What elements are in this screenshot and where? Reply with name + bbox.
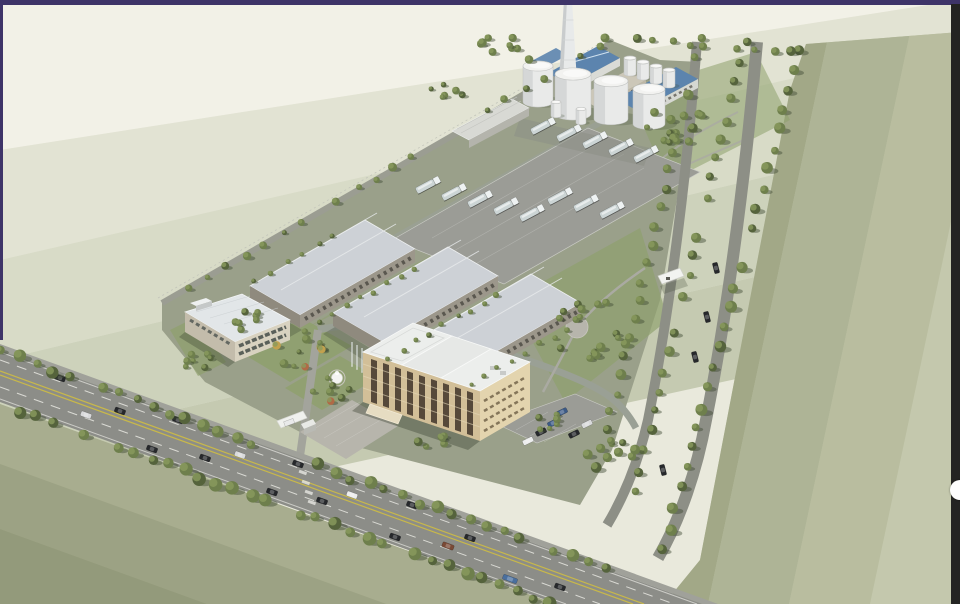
tree-highlight xyxy=(553,336,556,339)
tree-highlight xyxy=(197,420,205,428)
tree-highlight xyxy=(577,314,581,318)
tree-highlight xyxy=(509,34,514,39)
tree-highlight xyxy=(514,533,521,540)
tree-highlight xyxy=(594,301,599,306)
tree-highlight xyxy=(457,314,460,317)
tree-highlight xyxy=(748,225,753,230)
tree-highlight xyxy=(607,437,612,442)
tree-highlight xyxy=(578,306,583,311)
tree-highlight xyxy=(525,56,530,61)
tree-highlight xyxy=(670,329,676,335)
tree-highlight xyxy=(777,106,783,112)
tree-highlight xyxy=(415,500,421,506)
tree-highlight xyxy=(596,444,602,450)
tree-highlight xyxy=(310,389,314,393)
tree-highlight xyxy=(523,352,526,355)
tree-highlight xyxy=(329,517,337,525)
tree-highlight xyxy=(485,35,490,40)
tree-highlight xyxy=(298,219,302,223)
tree-highlight xyxy=(601,34,607,40)
tree-highlight xyxy=(297,350,300,353)
tree-highlight xyxy=(658,369,664,375)
tree-highlight xyxy=(560,308,565,313)
tree-highlight xyxy=(650,108,655,113)
tree-highlight xyxy=(737,262,744,269)
tree-highlight xyxy=(470,383,473,386)
tree-highlight xyxy=(243,252,248,257)
tree-highlight xyxy=(338,394,343,399)
tree-highlight xyxy=(346,528,352,534)
tree-highlight xyxy=(716,135,722,141)
tree-highlight xyxy=(14,350,22,358)
tree-highlight xyxy=(318,346,323,351)
tree-highlight xyxy=(179,412,187,420)
tree-highlight xyxy=(493,292,497,296)
tree-highlight xyxy=(728,284,734,290)
tree-highlight xyxy=(494,365,497,368)
tree-highlight xyxy=(615,335,619,339)
tree-highlight xyxy=(280,360,285,365)
tree-highlight xyxy=(489,48,494,53)
tree-highlight xyxy=(636,296,642,302)
tree-highlight xyxy=(432,501,440,509)
tree-highlight xyxy=(636,280,641,285)
tree-highlight xyxy=(286,259,289,262)
tree-highlight xyxy=(691,54,696,59)
tree-highlight xyxy=(478,39,483,44)
tree-highlight xyxy=(247,441,252,446)
tree-highlight xyxy=(584,557,590,563)
tree-highlight xyxy=(79,430,86,437)
tree-highlight xyxy=(412,267,415,270)
tree-highlight xyxy=(282,230,285,233)
tree-highlight xyxy=(603,453,609,459)
tree-highlight xyxy=(209,479,217,487)
tree-highlight xyxy=(616,370,623,377)
tree-highlight xyxy=(398,490,404,496)
tree-highlight xyxy=(128,448,135,455)
tree-highlight xyxy=(602,564,608,570)
tree-highlight xyxy=(345,476,351,482)
tree-highlight xyxy=(564,327,568,331)
tree-highlight xyxy=(760,186,765,191)
tree-highlight xyxy=(720,323,725,328)
tree-highlight xyxy=(481,374,484,377)
tree-highlight xyxy=(180,463,188,471)
tree-highlight xyxy=(253,317,257,321)
tree-highlight xyxy=(208,355,212,359)
tree-highlight xyxy=(513,586,519,592)
tree-highlight xyxy=(789,65,795,71)
tree-highlight xyxy=(317,320,320,323)
tree-highlight xyxy=(468,309,471,312)
tree-highlight xyxy=(657,545,663,551)
tree-highlight xyxy=(771,48,776,53)
tree-highlight xyxy=(625,334,631,340)
tree-highlight xyxy=(452,87,457,92)
tree-highlight xyxy=(114,443,120,449)
tree-highlight xyxy=(557,345,562,350)
tree-highlight xyxy=(247,490,255,498)
tree-highlight xyxy=(331,468,338,475)
tree-highlight xyxy=(204,351,209,356)
tree-highlight xyxy=(428,557,434,563)
rooftop-ac-unit xyxy=(500,371,506,375)
tree-highlight xyxy=(441,82,444,85)
tree-highlight xyxy=(736,59,741,64)
tree-highlight xyxy=(149,456,155,462)
tree-highlight xyxy=(374,177,378,181)
tree-highlight xyxy=(602,299,607,304)
tree-highlight xyxy=(613,330,618,335)
tree-highlight xyxy=(667,115,673,121)
tree-highlight xyxy=(327,398,332,403)
tree-highlight xyxy=(656,389,661,394)
tree-highlight xyxy=(409,548,417,556)
tree-highlight xyxy=(540,75,545,80)
architectural-rendering xyxy=(0,0,960,604)
tree-highlight xyxy=(500,96,505,101)
tree-highlight xyxy=(330,234,333,237)
tree-highlight xyxy=(666,140,670,144)
tree-highlight xyxy=(666,130,671,135)
tree-highlight xyxy=(556,315,560,319)
tree-highlight xyxy=(664,347,671,354)
tree-highlight xyxy=(332,198,337,203)
tree-highlight xyxy=(439,435,444,440)
tree-highlight xyxy=(329,382,334,387)
tree-highlight xyxy=(183,358,188,363)
tree-highlight xyxy=(715,341,722,348)
tree-highlight xyxy=(529,595,535,601)
tree-highlight xyxy=(668,149,674,155)
tree-highlight xyxy=(296,511,302,517)
tree-highlight xyxy=(330,312,333,315)
tree-highlight xyxy=(408,154,412,158)
tree-highlight xyxy=(696,404,703,411)
tree-highlight xyxy=(185,285,189,289)
tree-highlight xyxy=(237,326,242,331)
tree-highlight xyxy=(667,503,674,510)
tree-highlight xyxy=(48,418,54,424)
tree-highlight xyxy=(205,275,208,278)
tree-highlight xyxy=(631,315,637,321)
tree-highlight xyxy=(466,515,472,521)
tree-highlight xyxy=(649,223,655,229)
tree-highlight xyxy=(630,445,636,451)
tree-highlight xyxy=(317,340,320,343)
tree-highlight xyxy=(537,427,541,431)
tree-highlight xyxy=(730,77,735,82)
tree-highlight xyxy=(191,358,194,361)
tree-highlight xyxy=(165,410,171,416)
slide-border-left xyxy=(0,0,3,340)
tree-highlight xyxy=(300,252,303,255)
tree-highlight xyxy=(363,532,371,540)
tree-highlight xyxy=(771,147,776,152)
tree-highlight xyxy=(254,309,258,313)
tree-highlight xyxy=(567,549,575,557)
scene-canvas xyxy=(0,0,960,604)
tree-highlight xyxy=(312,458,320,466)
tree-highlight xyxy=(371,291,374,294)
tree-highlight xyxy=(619,352,625,358)
tree-highlight xyxy=(698,112,703,117)
tree-highlight xyxy=(482,522,489,529)
tree-highlight xyxy=(501,527,506,532)
tree-highlight xyxy=(302,329,306,333)
tree-highlight xyxy=(644,125,648,129)
tree-highlight xyxy=(661,137,666,142)
tree-highlight xyxy=(597,43,602,48)
tree-highlight xyxy=(688,442,694,448)
tree-highlight xyxy=(632,488,637,493)
tree-highlight xyxy=(706,173,711,178)
tree-highlight xyxy=(402,348,406,352)
tree-highlight xyxy=(614,392,618,396)
tree-highlight xyxy=(649,37,653,41)
tree-highlight xyxy=(446,509,452,515)
tree-highlight xyxy=(691,233,697,239)
tree-highlight xyxy=(462,567,470,575)
tree-highlight xyxy=(388,163,394,169)
tree-highlight xyxy=(30,410,37,417)
tree-highlight xyxy=(188,351,193,356)
tree-highlight xyxy=(444,560,451,567)
tree-highlight xyxy=(666,525,673,532)
tree-highlight xyxy=(547,426,550,429)
tree-highlight xyxy=(574,301,579,306)
tree-highlight xyxy=(98,383,104,389)
tree-highlight xyxy=(596,343,602,349)
tree-highlight xyxy=(761,162,768,169)
tree-highlight xyxy=(273,341,278,346)
tree-highlight xyxy=(678,292,684,298)
tree-highlight xyxy=(711,154,716,159)
tree-highlight xyxy=(485,108,489,112)
tree-highlight xyxy=(647,425,653,431)
tree-highlight xyxy=(193,473,201,481)
tree-highlight xyxy=(268,271,271,274)
tree-highlight xyxy=(549,548,554,553)
tree-highlight xyxy=(385,357,388,360)
tree-highlight xyxy=(495,580,501,586)
slide-border-top xyxy=(0,0,960,5)
tree-highlight xyxy=(688,124,694,130)
tree-highlight xyxy=(657,203,662,208)
tree-highlight xyxy=(259,242,264,247)
tree-highlight xyxy=(683,90,689,96)
tree-highlight xyxy=(377,539,383,545)
tree-highlight xyxy=(783,86,789,92)
tree-highlight xyxy=(346,386,350,390)
tree-highlight xyxy=(241,308,246,313)
tree-highlight xyxy=(614,448,620,454)
tree-highlight xyxy=(722,118,728,124)
tree-highlight xyxy=(414,338,417,341)
tree-highlight xyxy=(163,458,169,464)
tree-highlight xyxy=(379,485,384,490)
tree-highlight xyxy=(232,433,239,440)
tree-highlight xyxy=(356,184,360,188)
tree-highlight xyxy=(663,165,668,170)
tree-highlight xyxy=(751,47,755,51)
tree-highlight xyxy=(688,251,694,257)
tree-highlight xyxy=(774,123,781,130)
tree-highlight xyxy=(577,53,581,57)
tree-highlight xyxy=(699,43,704,48)
tree-highlight xyxy=(523,85,527,89)
tree-highlight xyxy=(46,367,54,375)
tree-highlight xyxy=(725,301,732,308)
tree-highlight xyxy=(553,416,558,421)
tree-highlight xyxy=(648,241,654,247)
tree-highlight xyxy=(311,512,317,518)
tree-highlight xyxy=(651,407,656,412)
tree-highlight xyxy=(302,363,307,368)
tree-highlight xyxy=(786,47,792,53)
tree-highlight xyxy=(201,364,206,369)
tree-highlight xyxy=(619,439,623,443)
tree-highlight xyxy=(743,38,748,43)
tree-highlight xyxy=(291,364,294,367)
viewer-edge-strip xyxy=(951,4,960,604)
tree-highlight xyxy=(317,241,320,244)
tree-highlight xyxy=(554,412,558,416)
tree-highlight xyxy=(750,204,756,210)
tree-highlight xyxy=(225,482,233,490)
tree-highlight xyxy=(709,364,714,369)
tree-highlight xyxy=(134,395,139,400)
tree-highlight xyxy=(662,185,668,191)
tree-highlight xyxy=(251,279,254,282)
tree-highlight xyxy=(591,463,598,470)
tree-highlight xyxy=(115,388,120,393)
tree-highlight xyxy=(482,301,485,304)
tree-highlight xyxy=(510,359,513,362)
tree-highlight xyxy=(703,383,709,389)
tree-highlight xyxy=(677,482,683,488)
tree-highlight xyxy=(212,426,219,433)
tree-highlight xyxy=(399,274,402,277)
tree-highlight xyxy=(687,42,691,46)
tree-highlight xyxy=(325,376,328,379)
tree-highlight xyxy=(726,94,732,100)
tree-highlight xyxy=(634,468,640,474)
tree-highlight xyxy=(680,112,685,117)
fountain-spray xyxy=(335,371,339,375)
tree-highlight xyxy=(236,320,241,325)
tree-highlight xyxy=(414,438,419,443)
tree-highlight xyxy=(586,355,590,359)
tree-highlight xyxy=(440,95,443,98)
tree-highlight xyxy=(14,407,22,415)
tree-highlight xyxy=(692,424,697,429)
tree-highlight xyxy=(426,332,430,336)
tree-highlight xyxy=(34,360,39,365)
tree-highlight xyxy=(358,295,361,298)
tree-highlight xyxy=(603,425,609,431)
tree-highlight xyxy=(684,463,689,468)
tree-highlight xyxy=(345,303,349,307)
tree-highlight xyxy=(673,137,678,142)
tree-highlight xyxy=(733,45,738,50)
tree-highlight xyxy=(476,572,483,579)
tree-highlight xyxy=(149,402,155,408)
tree-highlight xyxy=(685,138,690,143)
tree-highlight xyxy=(698,34,703,39)
tree-highlight xyxy=(670,38,675,43)
tree-highlight xyxy=(642,259,647,264)
tree-highlight xyxy=(365,477,373,485)
tree-highlight xyxy=(326,388,331,393)
tree-highlight xyxy=(687,272,691,276)
tree-highlight xyxy=(704,195,709,200)
tree-highlight xyxy=(302,335,307,340)
tree-highlight xyxy=(583,450,589,456)
gatehouse-booth xyxy=(666,277,670,280)
tree-highlight xyxy=(535,414,540,419)
tree-highlight xyxy=(573,316,577,320)
tree-highlight xyxy=(259,494,267,502)
tree-highlight xyxy=(384,280,387,283)
tree-highlight xyxy=(65,372,71,378)
tree-highlight xyxy=(536,340,540,344)
tree-highlight xyxy=(221,262,226,267)
tree-highlight xyxy=(507,42,511,46)
tree-highlight xyxy=(605,407,610,412)
tree-highlight xyxy=(438,322,441,325)
tree-highlight xyxy=(429,87,432,90)
tree-highlight xyxy=(633,34,639,40)
